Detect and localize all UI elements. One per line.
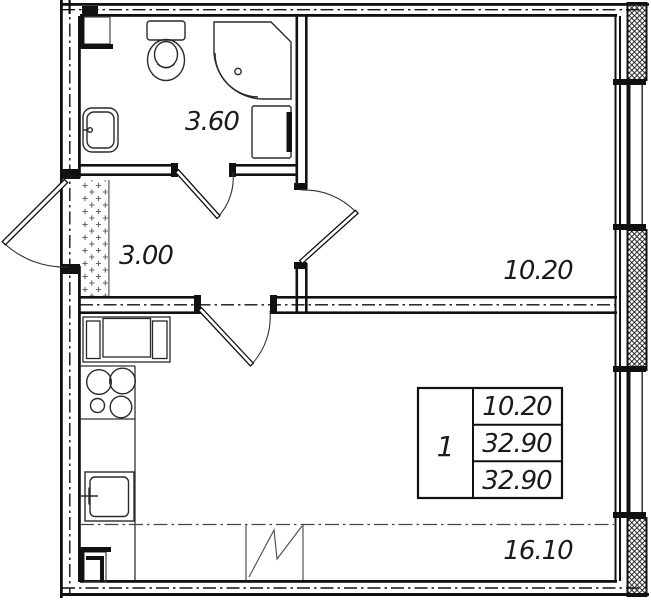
- wall-pier: [628, 230, 647, 370]
- living-area-value: 10.20: [482, 392, 552, 422]
- plan-background: [0, 0, 651, 600]
- rooms-count: 1: [437, 430, 454, 463]
- info-table: 1 10.20 32.90 32.90: [418, 388, 562, 498]
- wall-pier: [628, 518, 647, 596]
- hallway-shaft-strip: [81, 180, 110, 296]
- total-area-value: 32.90: [482, 429, 552, 459]
- wall-pier: [628, 3, 647, 80]
- room-area-label: 10.20: [503, 256, 573, 286]
- hallway-area-label: 3.00: [119, 241, 173, 271]
- total-area-with-balcony-value: 32.90: [482, 466, 552, 496]
- kitchen-area-label: 16.10: [503, 536, 573, 566]
- floor-plan: 1 10.20 32.90 32.90 3.60 3.00 10.20 16.1…: [0, 0, 651, 600]
- bathroom-area-label: 3.60: [185, 107, 239, 137]
